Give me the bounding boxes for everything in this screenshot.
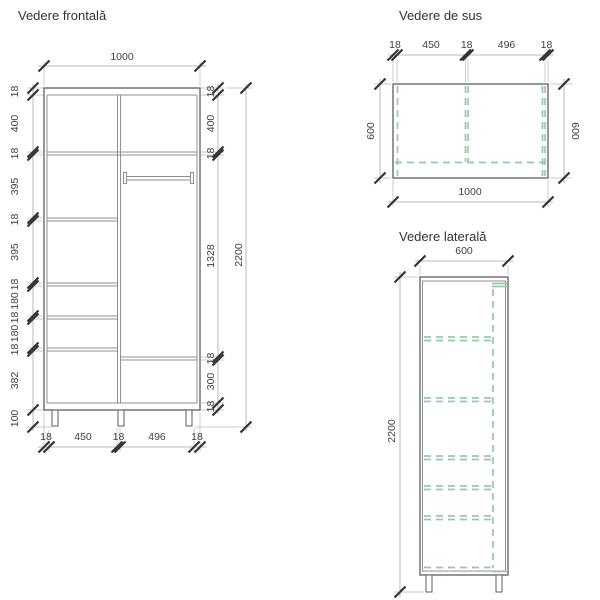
dim-label: 18 [9,86,21,98]
front-overall-height-label: 2200 [233,243,245,267]
dim-label: 496 [498,39,516,51]
front-view: Vedere frontală [9,8,252,453]
top-dim-top-chain: 18 450 18 496 18 [388,39,554,82]
technical-drawing-page: Vedere frontală [0,0,600,600]
side-hidden-edges [424,284,507,572]
front-dim-right-chain: 18 400 18 1328 18 300 18 [201,83,224,416]
side-dim-height: 2200 [386,272,424,598]
top-dim-width: 1000 [388,180,554,208]
dim-label: 18 [191,431,203,443]
dim-label: 18 [9,214,21,226]
front-cabinet-outline [44,88,200,410]
front-legs [52,410,192,426]
dim-label: 450 [74,431,92,443]
dim-label: 180 [9,325,21,343]
dim-label: 18 [205,353,217,365]
dim-label: 18 [205,401,217,413]
dim-label: 400 [205,115,217,133]
side-legs [426,575,502,592]
dim-label: 18 [205,148,217,160]
front-hanging-rod [124,173,194,184]
dim-label: 18 [9,148,21,160]
front-dim-left-chain: 18 400 18 395 18 395 18 180 18 180 18 38… [9,83,52,433]
front-dim-overall-height: 2200 [195,83,252,433]
dim-label: 395 [9,178,21,196]
front-divider [118,95,121,403]
side-dim-depth: 600 [415,245,514,275]
top-view: Vedere de sus 18 450 18 496 [365,8,581,208]
dim-label: 18 [389,39,401,51]
top-cabinet-outline [393,84,548,178]
top-hidden-edges [395,86,546,176]
side-cabinet-outline [420,277,508,575]
side-view: Vedere laterală 600 [386,229,514,598]
side-view-title: Vedere laterală [399,229,487,244]
dim-label: 400 [9,115,21,133]
dim-label: 300 [205,373,217,391]
front-view-title: Vedere frontală [18,8,107,23]
top-width-label: 1000 [458,186,482,198]
top-dim-depth-left: 600 [365,79,391,184]
top-depth-right-label: 600 [569,122,581,140]
dim-label: 180 [9,292,21,310]
front-width-label: 1000 [110,51,134,63]
side-height-label: 2200 [386,419,398,443]
top-view-title: Vedere de sus [399,8,483,23]
dim-label: 18 [541,39,553,51]
dim-label: 18 [9,344,21,356]
furniture-views-drawing: Vedere frontală [0,0,600,600]
front-shelves [47,152,197,360]
side-depth-label: 600 [455,245,473,257]
dim-label: 1328 [205,244,217,268]
dim-label: 496 [148,431,166,443]
dim-label: 18 [205,86,217,98]
dim-label: 18 [461,39,473,51]
top-depth-left-label: 600 [365,122,377,140]
dim-label: 18 [40,431,52,443]
dim-label: 18 [9,279,21,291]
dim-label: 395 [9,243,21,261]
front-dim-width: 1000 [38,51,206,86]
dim-label: 450 [422,39,440,51]
dim-label: 18 [113,431,125,443]
dim-label: 18 [9,312,21,324]
dim-label: 382 [9,372,21,390]
top-dim-depth-right: 600 [550,79,581,184]
dim-label: 100 [9,410,21,428]
